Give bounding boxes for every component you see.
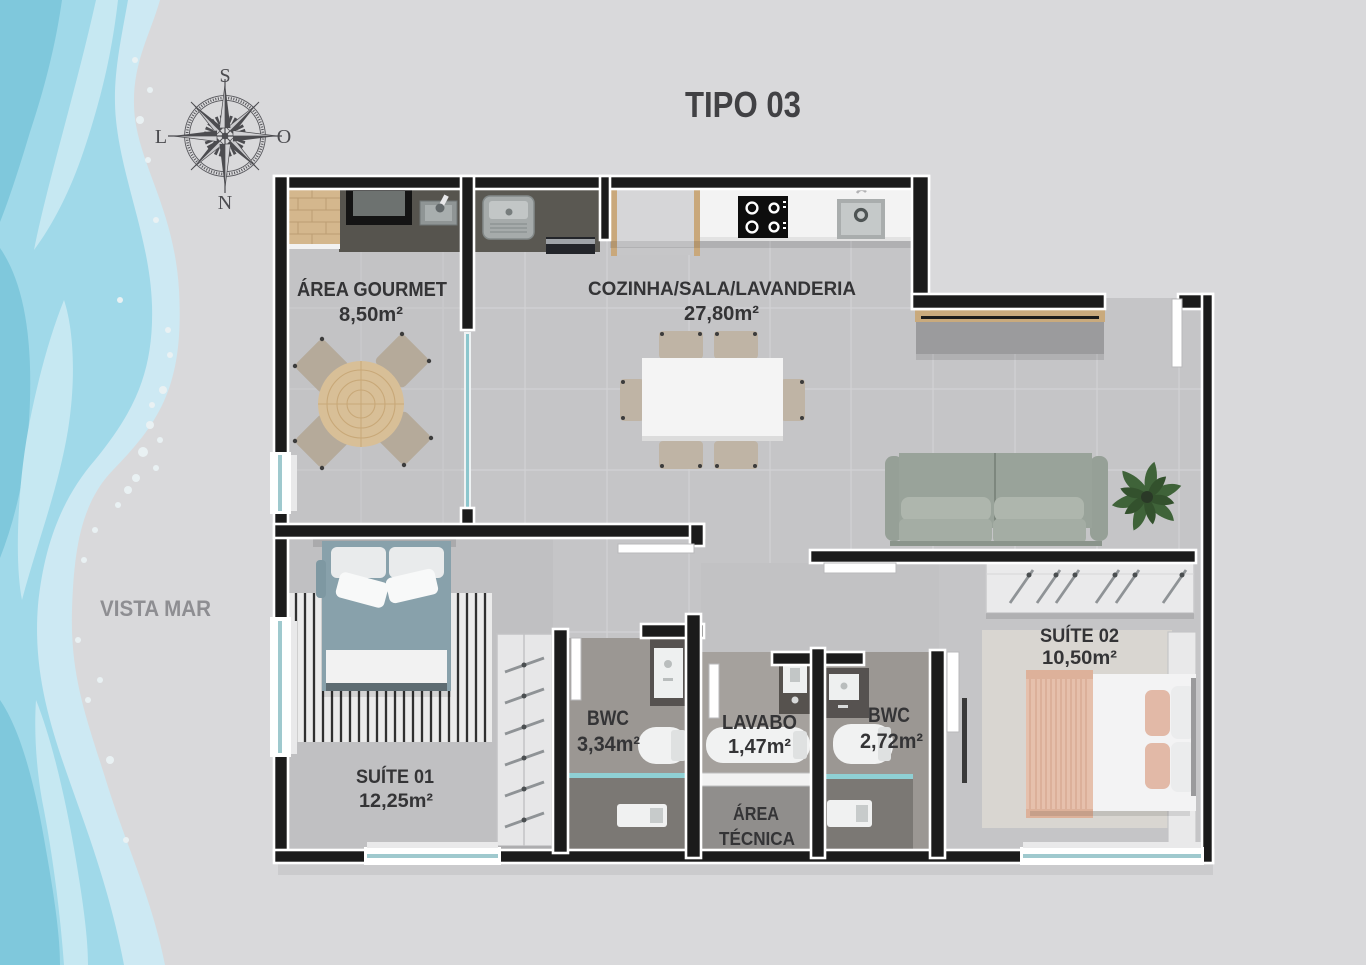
svg-text:COZINHA/SALA/LAVANDERIA: COZINHA/SALA/LAVANDERIA: [588, 279, 856, 300]
svg-text:LAVABO: LAVABO: [722, 712, 797, 734]
svg-text:N: N: [218, 192, 232, 214]
svg-text:2,72m²: 2,72m²: [860, 730, 923, 753]
svg-text:BWC: BWC: [587, 707, 629, 730]
svg-text:O: O: [277, 126, 291, 148]
svg-text:L: L: [155, 126, 167, 148]
svg-text:ÁREA GOURMET: ÁREA GOURMET: [297, 278, 447, 301]
svg-text:VISTA MAR: VISTA MAR: [100, 596, 211, 621]
svg-text:1,47m²: 1,47m²: [728, 736, 791, 758]
svg-text:SUÍTE 01: SUÍTE 01: [356, 765, 434, 788]
svg-text:ÁREA: ÁREA: [733, 803, 779, 824]
svg-text:10,50m²: 10,50m²: [1042, 647, 1118, 669]
svg-text:TÉCNICA: TÉCNICA: [719, 828, 795, 849]
svg-text:12,25m²: 12,25m²: [359, 790, 434, 812]
svg-text:3,34m²: 3,34m²: [577, 733, 640, 756]
svg-text:SUÍTE 02: SUÍTE 02: [1040, 624, 1119, 647]
svg-text:S: S: [219, 65, 230, 87]
svg-text:TIPO 03: TIPO 03: [685, 84, 801, 125]
svg-text:8,50m²: 8,50m²: [339, 304, 403, 326]
svg-text:27,80m²: 27,80m²: [684, 303, 759, 325]
svg-text:BWC: BWC: [868, 704, 910, 727]
